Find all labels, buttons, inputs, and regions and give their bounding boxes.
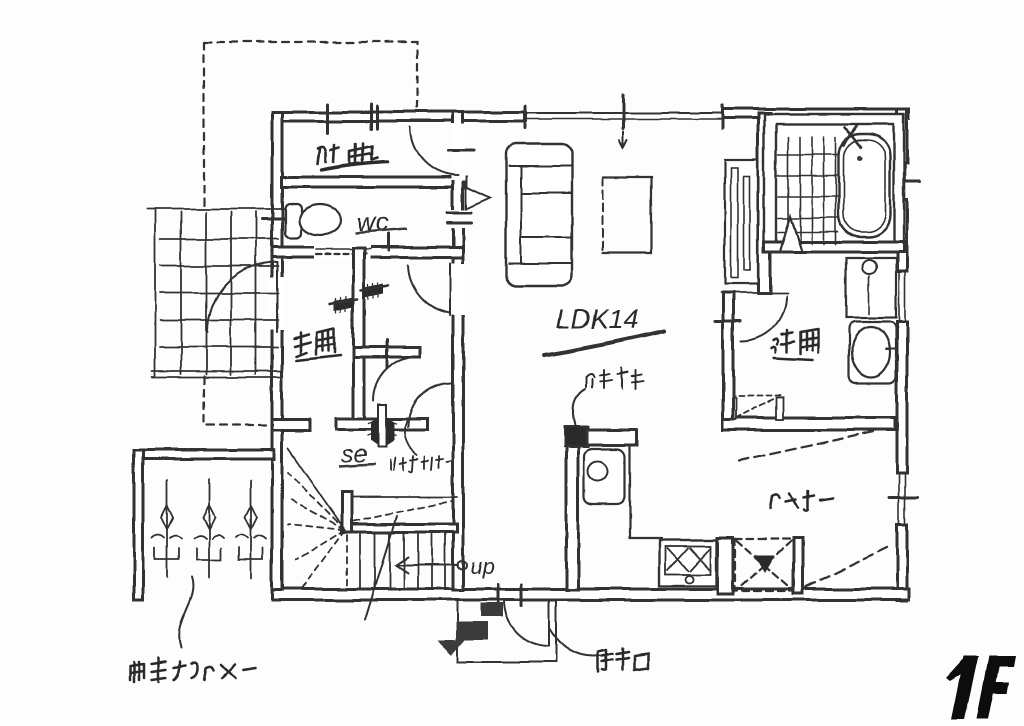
svg-text:LDK14: LDK14 [556,304,639,334]
svg-text:up: up [470,554,494,579]
